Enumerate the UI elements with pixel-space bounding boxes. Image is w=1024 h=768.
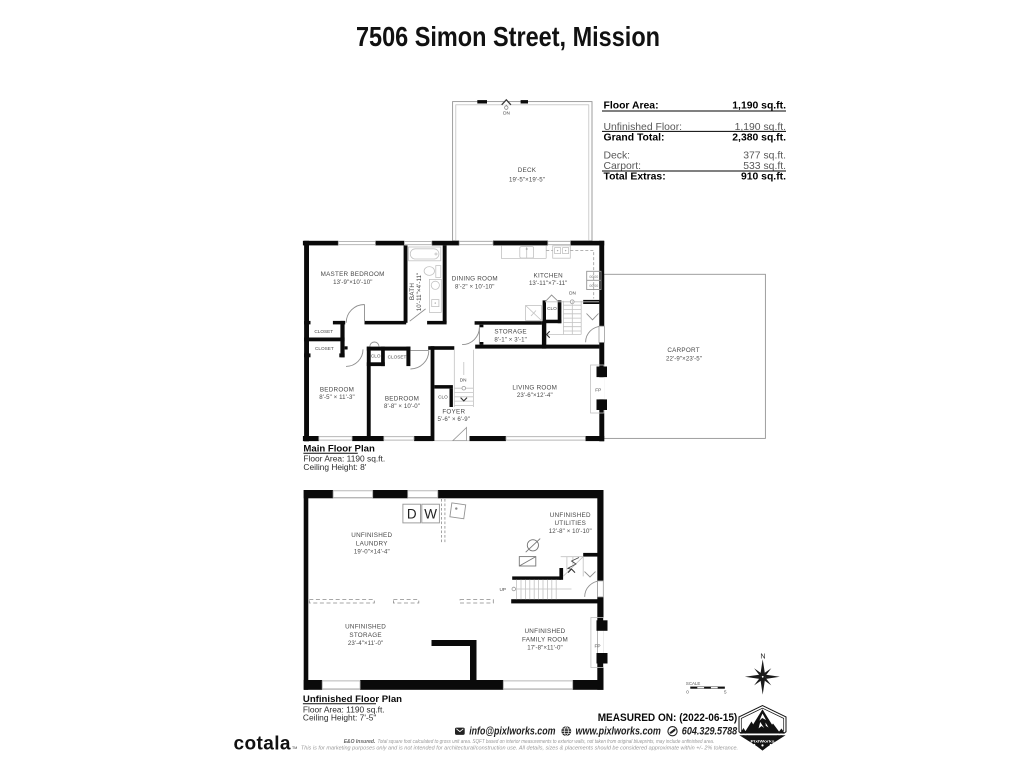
svg-text:Total Extras:: Total Extras: [604,171,666,182]
svg-text:FAMILY ROOM: FAMILY ROOM [522,636,568,643]
svg-text:Total square foot calculated t: Total square foot calculated to gross un… [378,739,715,745]
svg-text:FP: FP [595,388,601,393]
svg-text:UP: UP [500,587,507,592]
svg-text:BATH: BATH [409,283,416,301]
svg-text:BEDROOM: BEDROOM [385,395,419,402]
svg-text:This is for marketing purposes: This is for marketing purposes only and … [301,745,738,751]
svg-text:KITCHEN: KITCHEN [534,272,564,279]
svg-text:CARPORT: CARPORT [667,347,699,354]
svg-text:0: 0 [686,689,689,694]
svg-text:12'-8" × 10'-10": 12'-8" × 10'-10" [549,528,592,535]
svg-text:UNFINISHED: UNFINISHED [345,624,386,631]
svg-text:7506 Simon Street, Mission: 7506 Simon Street, Mission [356,21,660,52]
svg-text:DN: DN [569,291,576,296]
svg-text:LIVING ROOM: LIVING ROOM [512,385,557,392]
svg-text:00|00: 00|00 [589,275,598,279]
svg-text:00|00: 00|00 [589,284,598,288]
svg-text:CLO: CLO [547,306,557,311]
svg-text:MEASURED ON: (2022-06-15): MEASURED ON: (2022-06-15) [598,712,738,724]
svg-text:SCALE: SCALE [686,681,700,686]
svg-text:13'-9"×10'-10": 13'-9"×10'-10" [333,279,372,286]
svg-text:D: D [407,507,417,522]
svg-text:19'-0"×14'-4": 19'-0"×14'-4" [354,548,390,555]
svg-text:8'-8" × 10'-0": 8'-8" × 10'-0" [384,403,420,410]
svg-text:PixlWorks: PixlWorks [751,738,776,743]
svg-text:910 sq.ft.: 910 sq.ft. [741,171,786,182]
svg-text:CLO: CLO [371,354,381,359]
svg-text:8'-5" × 11'-3": 8'-5" × 11'-3" [319,394,355,401]
svg-text:TM: TM [292,746,297,750]
svg-text:cotala: cotala [234,733,291,754]
svg-text:www.pixlworks.com: www.pixlworks.com [576,726,662,738]
svg-text:W: W [424,507,437,522]
svg-text:Carport:: Carport: [604,161,642,172]
svg-text:Ceiling Height: 7'-5": Ceiling Height: 7'-5" [303,713,376,723]
svg-text:2,380 sq.ft.: 2,380 sq.ft. [732,132,786,143]
svg-text:UNFINISHED: UNFINISHED [550,512,591,519]
svg-text:UNFINISHED: UNFINISHED [351,532,392,539]
svg-text:8'-1" × 3'-1": 8'-1" × 3'-1" [494,336,527,343]
svg-text:5: 5 [724,690,727,695]
svg-text:533 sq.ft.: 533 sq.ft. [743,161,786,172]
svg-text:13'-11"×7'-11": 13'-11"×7'-11" [529,280,568,287]
svg-text:23'-4"×11'-0": 23'-4"×11'-0" [348,640,383,647]
svg-text:22'-9"×23'-5": 22'-9"×23'-5" [666,356,702,363]
svg-text:23'-6"×12'-4": 23'-6"×12'-4" [517,392,553,399]
svg-text:Ceiling Height: 8': Ceiling Height: 8' [303,462,366,472]
svg-text:DECK: DECK [518,167,537,174]
svg-text:Grand Total:: Grand Total: [604,132,665,143]
svg-text:Floor Area:: Floor Area: [604,101,659,112]
svg-text:STORAGE: STORAGE [349,632,381,639]
svg-text:UTILITIES: UTILITIES [554,520,586,527]
svg-text:FOYER: FOYER [442,409,465,416]
svg-text:N: N [760,651,765,660]
svg-text:CLOSET: CLOSET [314,329,333,334]
svg-text:CLOSET: CLOSET [315,346,334,351]
svg-text:8'-2" × 10'-10": 8'-2" × 10'-10" [455,284,495,291]
svg-text:FP: FP [595,644,601,649]
svg-text:10'-11"×4'-11": 10'-11"×4'-11" [416,273,423,312]
svg-text:E&O Insured.: E&O Insured. [344,739,376,745]
svg-text:19'-5"×19'-5": 19'-5"×19'-5" [509,176,545,183]
svg-text:CLO: CLO [438,395,448,400]
svg-text:DN: DN [503,111,510,116]
svg-text:UNFINISHED: UNFINISHED [525,628,566,635]
svg-text:17'-8"×11'-0": 17'-8"×11'-0" [527,644,562,651]
svg-text:MASTER BEDROOM: MASTER BEDROOM [321,271,385,278]
svg-text:BEDROOM: BEDROOM [320,386,354,393]
svg-text:DINING ROOM: DINING ROOM [452,276,498,283]
svg-text:STORAGE: STORAGE [494,329,526,336]
svg-text:1,190 sq.ft.: 1,190 sq.ft. [732,101,786,112]
svg-text:info@pixlworks.com: info@pixlworks.com [469,726,556,738]
svg-text:DN: DN [460,377,467,382]
svg-text:604.329.5788: 604.329.5788 [682,726,737,738]
svg-text:LAUNDRY: LAUNDRY [356,540,388,547]
svg-text:CLOSET: CLOSET [388,355,407,360]
svg-text:5'-6" × 6'-9": 5'-6" × 6'-9" [438,416,471,423]
